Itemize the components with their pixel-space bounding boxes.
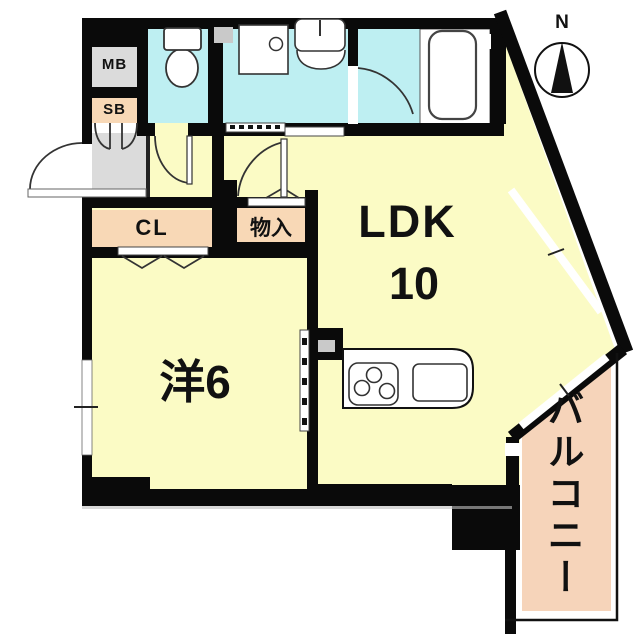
storage-folding-door: [248, 198, 305, 206]
closet-folding-door: [118, 247, 208, 255]
bath-window: [479, 34, 491, 49]
closet-label: CL: [92, 215, 212, 241]
toilet-door-leaf: [187, 136, 192, 184]
storage-label: 物入: [235, 212, 307, 242]
shoe-box-door-strip: [92, 123, 137, 133]
kitchen-sink-icon: [413, 364, 467, 401]
shoe-box-label: SB: [92, 101, 137, 118]
bathtub-icon: [429, 31, 476, 119]
entry-step-line: [146, 133, 150, 197]
north-compass-icon: [535, 42, 589, 97]
ldk-door-leaf: [281, 139, 287, 197]
corner-window: [505, 443, 520, 456]
wall-duct: [214, 27, 233, 43]
range-hood: [318, 340, 335, 352]
balcony-label: バルコニー: [545, 372, 589, 617]
ldk-size-label: 10: [344, 258, 484, 310]
entry-door-leaf: [28, 189, 146, 197]
toilet-icon: [166, 49, 198, 87]
western-room-label: 洋6: [125, 346, 265, 412]
floor-plan-canvas: MB SB CL 物入 LDK 10 洋6 バルコニー N: [0, 0, 640, 640]
ldk-label: LDK: [340, 196, 475, 248]
meter-box-label: MB: [92, 56, 137, 73]
bathroom-door-opening: [348, 66, 358, 124]
entry-door-arc: [30, 143, 82, 189]
north-label: N: [546, 12, 578, 34]
